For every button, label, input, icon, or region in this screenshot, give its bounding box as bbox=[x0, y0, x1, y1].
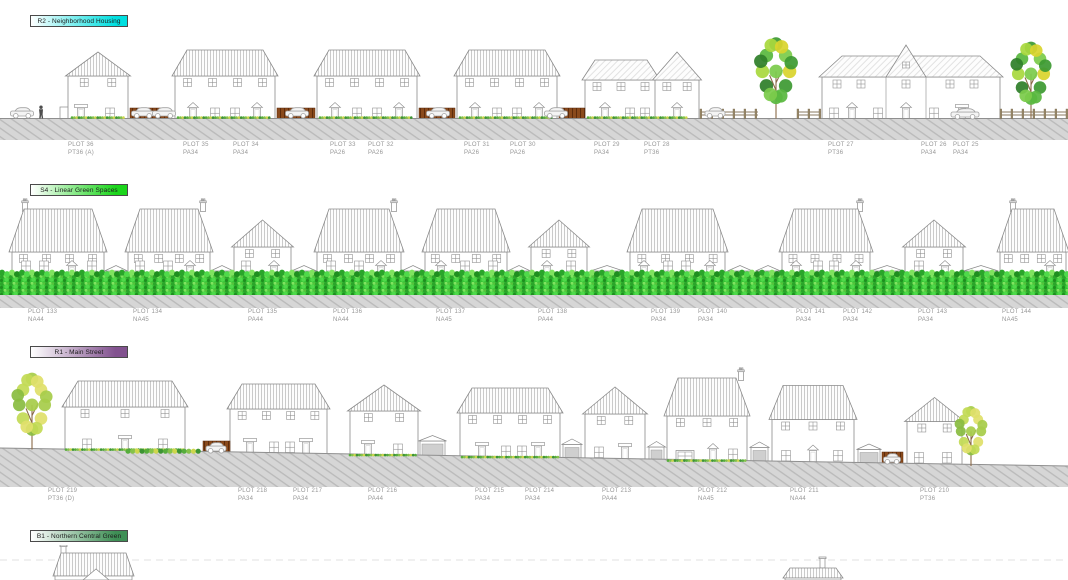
plot-number: PLOT 143 bbox=[918, 309, 947, 317]
elevation-scene-s4 bbox=[0, 198, 1068, 308]
plot-label: PLOT 25PA34 bbox=[953, 142, 979, 158]
section-banner-s4: S4 - Linear Green Spaces bbox=[30, 184, 128, 196]
plot-housetype: PT36 (D) bbox=[48, 496, 77, 504]
elevation-sheet: R2 - Neighborhood Housing PLOT 36PT36 (A… bbox=[0, 0, 1068, 580]
plot-housetype: PA34 bbox=[796, 317, 825, 325]
plot-number: PLOT 136 bbox=[333, 309, 362, 317]
plot-number: PLOT 33 bbox=[330, 142, 356, 150]
section-banner-label: S4 - Linear Green Spaces bbox=[40, 187, 118, 194]
plot-labels-s4: PLOT 133NA44PLOT 134NA45PLOT 135PA44PLOT… bbox=[0, 309, 1068, 327]
plot-housetype: NA44 bbox=[790, 496, 819, 504]
plot-number: PLOT 210 bbox=[920, 488, 949, 496]
plot-label: PLOT 26PA34 bbox=[921, 142, 947, 158]
plot-housetype: PA34 bbox=[953, 150, 979, 158]
plot-label: PLOT 144NA45 bbox=[1002, 309, 1031, 325]
plot-label: PLOT 137NA45 bbox=[436, 309, 465, 325]
plot-labels-b1 bbox=[0, 575, 1068, 580]
plot-housetype: PT36 (A) bbox=[68, 150, 94, 158]
plot-number: PLOT 35 bbox=[183, 142, 209, 150]
section-banner-label: B1 - Northern Central Green bbox=[37, 533, 121, 540]
plot-label: PLOT 28PT36 bbox=[644, 142, 670, 158]
plot-number: PLOT 216 bbox=[368, 488, 397, 496]
plot-label: PLOT 34PA34 bbox=[233, 142, 259, 158]
plot-housetype: PA34 bbox=[843, 317, 872, 325]
plot-label: PLOT 216PA44 bbox=[368, 488, 397, 504]
plot-housetype: PA34 bbox=[651, 317, 680, 325]
plot-number: PLOT 25 bbox=[953, 142, 979, 150]
plot-housetype: PT36 bbox=[920, 496, 949, 504]
plot-housetype: PA44 bbox=[248, 317, 277, 325]
plot-label: PLOT 138PA44 bbox=[538, 309, 567, 325]
plot-number: PLOT 139 bbox=[651, 309, 680, 317]
plot-number: PLOT 135 bbox=[248, 309, 277, 317]
plot-housetype: PT36 bbox=[828, 150, 854, 158]
plot-label: PLOT 35PA34 bbox=[183, 142, 209, 158]
plot-label: PLOT 29PA34 bbox=[594, 142, 620, 158]
plot-housetype: NA44 bbox=[333, 317, 362, 325]
elevation-scene-r1 bbox=[0, 362, 1068, 487]
plot-label: PLOT 135PA44 bbox=[248, 309, 277, 325]
plot-label: PLOT 212NA45 bbox=[698, 488, 727, 504]
plot-housetype: PA26 bbox=[464, 150, 490, 158]
plot-number: PLOT 29 bbox=[594, 142, 620, 150]
plot-label: PLOT 215PA34 bbox=[475, 488, 504, 504]
plot-label: PLOT 210PT36 bbox=[920, 488, 949, 504]
plot-housetype: NA45 bbox=[133, 317, 162, 325]
plot-label: PLOT 211NA44 bbox=[790, 488, 819, 504]
plot-label: PLOT 214PA34 bbox=[525, 488, 554, 504]
plot-label: PLOT 36PT36 (A) bbox=[68, 142, 94, 158]
plot-housetype: PA34 bbox=[918, 317, 947, 325]
plot-housetype: PA34 bbox=[698, 317, 727, 325]
plot-label: PLOT 140PA34 bbox=[698, 309, 727, 325]
plot-number: PLOT 144 bbox=[1002, 309, 1031, 317]
elevation-scene-r2 bbox=[0, 35, 1068, 140]
plot-housetype: PA34 bbox=[233, 150, 259, 158]
plot-housetype: NA45 bbox=[1002, 317, 1031, 325]
plot-number: PLOT 36 bbox=[68, 142, 94, 150]
plot-housetype: PA34 bbox=[921, 150, 947, 158]
plot-housetype: PA34 bbox=[594, 150, 620, 158]
plot-label: PLOT 133NA44 bbox=[28, 309, 57, 325]
plot-number: PLOT 31 bbox=[464, 142, 490, 150]
plot-label: PLOT 219PT36 (D) bbox=[48, 488, 77, 504]
plot-number: PLOT 212 bbox=[698, 488, 727, 496]
plot-housetype: PA44 bbox=[368, 496, 397, 504]
section-banner-label: R2 - Neighborhood Housing bbox=[37, 18, 120, 25]
plot-labels-r1: PLOT 219PT36 (D)PLOT 218PA34PLOT 217PA34… bbox=[0, 488, 1068, 506]
plot-label: PLOT 33PA26 bbox=[330, 142, 356, 158]
plot-housetype: NA45 bbox=[436, 317, 465, 325]
plot-housetype: PA34 bbox=[525, 496, 554, 504]
plot-number: PLOT 142 bbox=[843, 309, 872, 317]
plot-label: PLOT 143PA34 bbox=[918, 309, 947, 325]
section-banner-r2: R2 - Neighborhood Housing bbox=[30, 15, 128, 27]
plot-number: PLOT 26 bbox=[921, 142, 947, 150]
plot-label: PLOT 27PT36 bbox=[828, 142, 854, 158]
plot-housetype: PA26 bbox=[330, 150, 356, 158]
plot-label: PLOT 142PA34 bbox=[843, 309, 872, 325]
plot-number: PLOT 141 bbox=[796, 309, 825, 317]
plot-label: PLOT 141PA34 bbox=[796, 309, 825, 325]
plot-housetype: PA44 bbox=[602, 496, 631, 504]
plot-number: PLOT 219 bbox=[48, 488, 77, 496]
plot-housetype: PA34 bbox=[183, 150, 209, 158]
plot-label: PLOT 136NA44 bbox=[333, 309, 362, 325]
plot-housetype: PA34 bbox=[475, 496, 504, 504]
plot-label: PLOT 213PA44 bbox=[602, 488, 631, 504]
plot-number: PLOT 34 bbox=[233, 142, 259, 150]
plot-label: PLOT 31PA26 bbox=[464, 142, 490, 158]
plot-number: PLOT 213 bbox=[602, 488, 631, 496]
plot-number: PLOT 134 bbox=[133, 309, 162, 317]
section-banner-label: R1 - Main Street bbox=[55, 349, 104, 356]
plot-number: PLOT 133 bbox=[28, 309, 57, 317]
plot-number: PLOT 138 bbox=[538, 309, 567, 317]
plot-housetype: PA44 bbox=[538, 317, 567, 325]
plot-number: PLOT 32 bbox=[368, 142, 394, 150]
plot-number: PLOT 214 bbox=[525, 488, 554, 496]
section-banner-b1: B1 - Northern Central Green bbox=[30, 530, 128, 542]
plot-housetype: PA34 bbox=[293, 496, 322, 504]
plot-housetype: NA44 bbox=[28, 317, 57, 325]
section-banner-r1: R1 - Main Street bbox=[30, 346, 128, 358]
plot-number: PLOT 27 bbox=[828, 142, 854, 150]
plot-number: PLOT 215 bbox=[475, 488, 504, 496]
plot-labels-r2: PLOT 36PT36 (A)PLOT 35PA34PLOT 34PA34PLO… bbox=[0, 142, 1068, 160]
plot-number: PLOT 218 bbox=[238, 488, 267, 496]
plot-housetype: PA26 bbox=[368, 150, 394, 158]
plot-number: PLOT 217 bbox=[293, 488, 322, 496]
plot-label: PLOT 217PA34 bbox=[293, 488, 322, 504]
plot-label: PLOT 134NA45 bbox=[133, 309, 162, 325]
plot-label: PLOT 218PA34 bbox=[238, 488, 267, 504]
plot-housetype: PA34 bbox=[238, 496, 267, 504]
plot-number: PLOT 211 bbox=[790, 488, 819, 496]
plot-number: PLOT 137 bbox=[436, 309, 465, 317]
plot-number: PLOT 28 bbox=[644, 142, 670, 150]
plot-label: PLOT 139PA34 bbox=[651, 309, 680, 325]
plot-housetype: PT36 bbox=[644, 150, 670, 158]
plot-housetype: PA26 bbox=[510, 150, 536, 158]
plot-number: PLOT 30 bbox=[510, 142, 536, 150]
plot-label: PLOT 30PA26 bbox=[510, 142, 536, 158]
plot-number: PLOT 140 bbox=[698, 309, 727, 317]
plot-label: PLOT 32PA26 bbox=[368, 142, 394, 158]
plot-housetype: NA45 bbox=[698, 496, 727, 504]
